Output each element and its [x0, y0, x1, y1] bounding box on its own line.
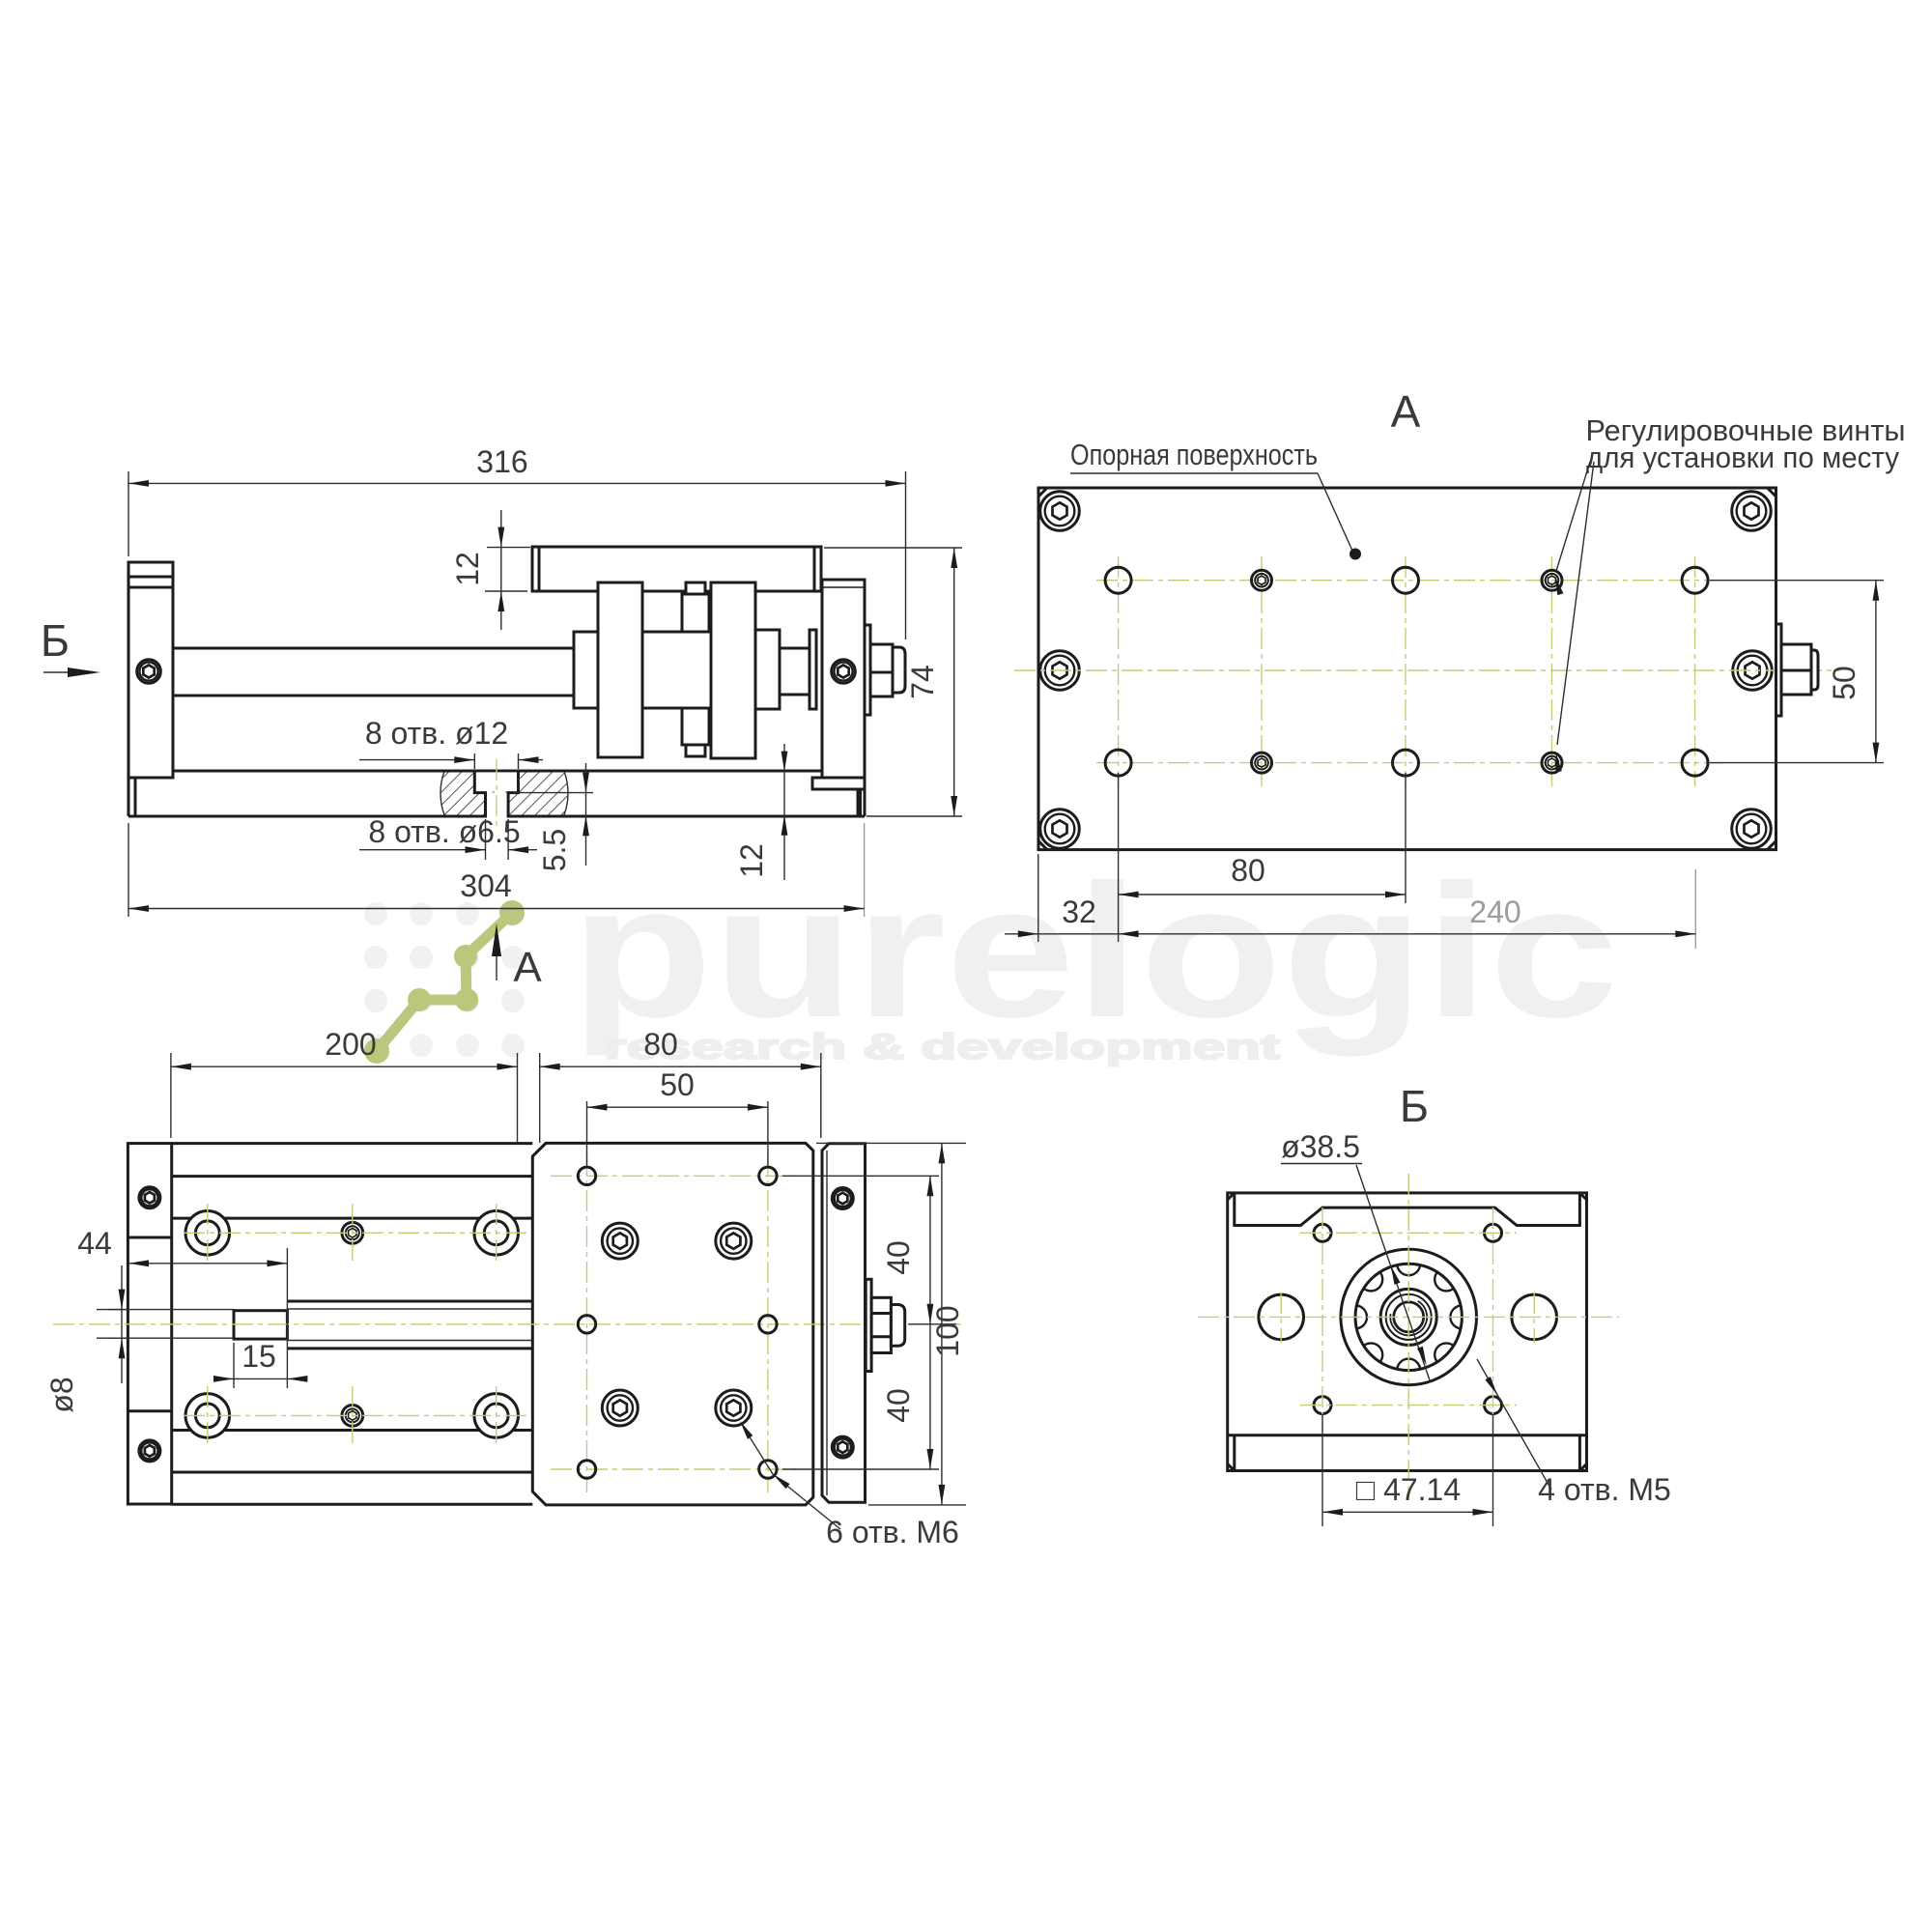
svg-text:purelogic: purelogic	[571, 845, 1619, 1057]
svg-text:15: 15	[241, 1339, 276, 1374]
svg-text:32: 32	[1062, 895, 1096, 929]
svg-text:5.5: 5.5	[537, 829, 572, 871]
svg-text:50: 50	[660, 1067, 695, 1102]
svg-text:200: 200	[325, 1027, 376, 1062]
svg-text:Б: Б	[41, 615, 70, 666]
svg-text:40: 40	[881, 1240, 916, 1275]
svg-text:ø38.5: ø38.5	[1281, 1129, 1360, 1164]
svg-text:316: 316	[476, 444, 527, 479]
svg-text:для установки по месту: для установки по месту	[1586, 440, 1899, 474]
svg-text:12: 12	[450, 552, 485, 586]
svg-text:ø8: ø8	[44, 1377, 79, 1412]
svg-text:4 отв. М5: 4 отв. М5	[1538, 1472, 1671, 1507]
svg-text:80: 80	[643, 1027, 678, 1062]
svg-text:research & development: research & development	[604, 1027, 1280, 1066]
svg-text:100: 100	[930, 1305, 965, 1356]
svg-text:304: 304	[460, 868, 511, 903]
svg-text:74: 74	[905, 665, 940, 699]
svg-text:6 отв. М6: 6 отв. М6	[826, 1515, 959, 1549]
svg-text:8 отв. ø6.5: 8 отв. ø6.5	[368, 814, 520, 849]
svg-text:50: 50	[1827, 666, 1861, 700]
svg-text:8 отв. ø12: 8 отв. ø12	[365, 716, 508, 751]
svg-text:А: А	[1391, 386, 1421, 437]
svg-text:Опорная поверхность: Опорная поверхность	[1070, 438, 1318, 471]
svg-text:А: А	[513, 944, 542, 991]
svg-text:240: 240	[1469, 895, 1520, 929]
svg-text:44: 44	[77, 1226, 112, 1261]
svg-text:80: 80	[1231, 853, 1265, 888]
svg-text:□ 47.14: □ 47.14	[1356, 1472, 1461, 1507]
svg-text:Б: Б	[1400, 1081, 1429, 1131]
svg-text:12: 12	[734, 843, 769, 878]
svg-text:40: 40	[881, 1388, 916, 1423]
